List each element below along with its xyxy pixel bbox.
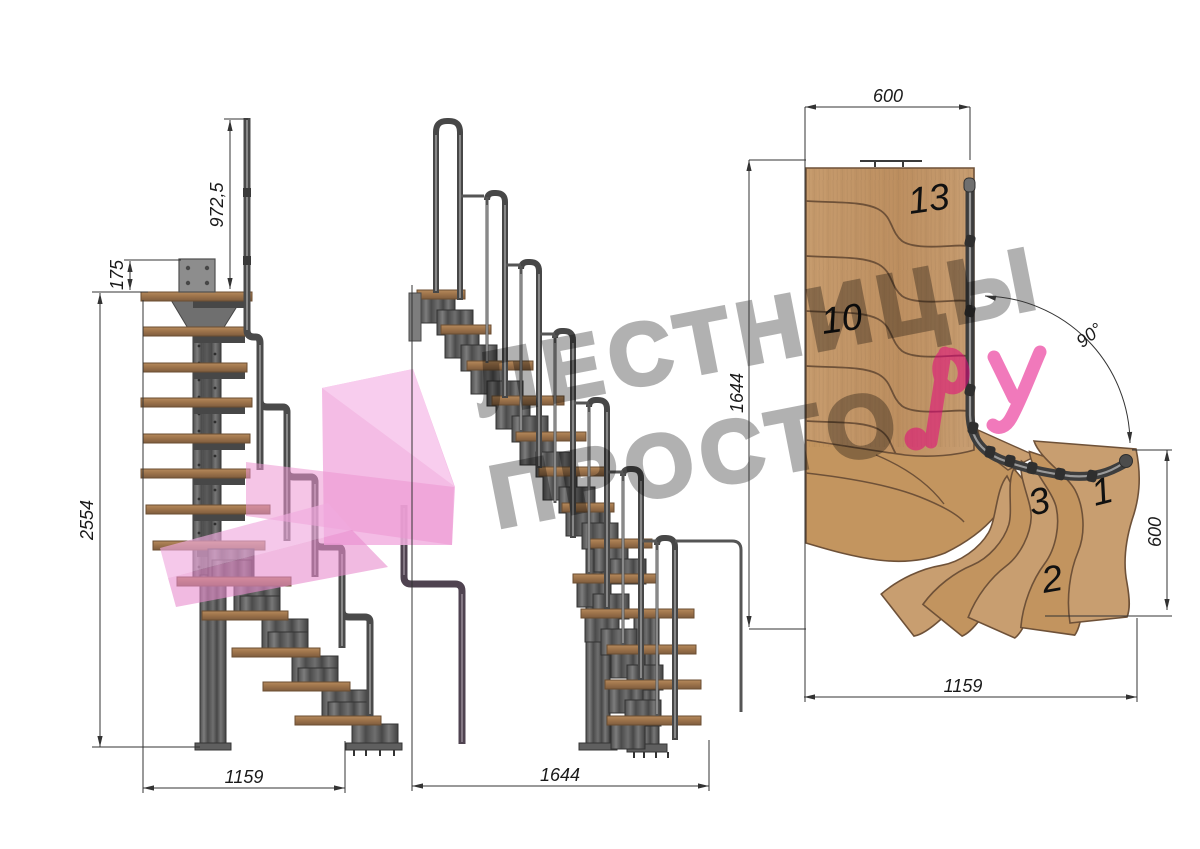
svg-text:1644: 1644 (727, 373, 747, 413)
svg-text:972,5: 972,5 (207, 181, 227, 227)
svg-text:600: 600 (1145, 517, 1165, 547)
svg-text:1159: 1159 (225, 767, 264, 787)
svg-text:1644: 1644 (540, 765, 580, 785)
svg-text:2554: 2554 (77, 500, 97, 541)
svg-text:1159: 1159 (944, 676, 983, 696)
svg-text:13: 13 (905, 176, 952, 222)
svg-text:600: 600 (873, 86, 903, 106)
svg-text:175: 175 (107, 259, 127, 290)
